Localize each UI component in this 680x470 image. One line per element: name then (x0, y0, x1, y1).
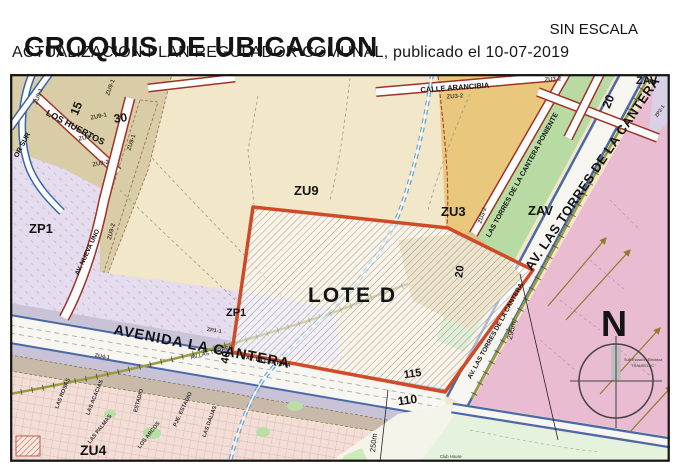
zoning-map-canvas: ZU9 ZU3 ZAV ZAV ZP1 ZP1 ZU4 LOTE D ZU9-1… (10, 74, 670, 462)
zone-label-zu3: ZU3 (441, 204, 466, 219)
zone-label-zp1-small: ZP1 (226, 307, 246, 319)
road-width-110: 110 (397, 392, 418, 409)
zone-label-zu4: ZU4 (80, 442, 107, 458)
road-width-40: 40 (219, 350, 233, 364)
zone-label-zp1: ZP1 (29, 221, 53, 236)
scale-note: SIN ESCALA (550, 21, 638, 38)
page-subtitle: ACTUALIZACION PLAN REGULADOR COMUNAL, pu… (12, 44, 569, 62)
compass-north-label: N (601, 303, 627, 344)
croquis-page: CROQUIS DE UBICACION SIN ESCALA ACTUALIZ… (0, 0, 680, 470)
road-width-30: 30 (113, 110, 128, 126)
lote-d-label: LOTE D (308, 284, 397, 307)
road-width-20b: 20 (453, 265, 467, 279)
subzone-label: ZU3-2 (446, 93, 464, 100)
zone-label-zav: ZAV (528, 203, 553, 218)
substation-note-2: "TRANSELEC" (630, 364, 656, 368)
substation-note-1: Sub-Estación Eléctrica (624, 358, 663, 362)
zone-label-zu9: ZU9 (294, 183, 319, 198)
club-house-note: Club House (440, 454, 463, 459)
red-hatch-patch (16, 436, 40, 456)
subzone-label: ZU3-2 (544, 76, 562, 83)
road-width-115: 115 (403, 367, 422, 381)
zoning-map: ZU9 ZU3 ZAV ZAV ZP1 ZP1 ZU4 LOTE D ZU9-1… (10, 74, 670, 462)
